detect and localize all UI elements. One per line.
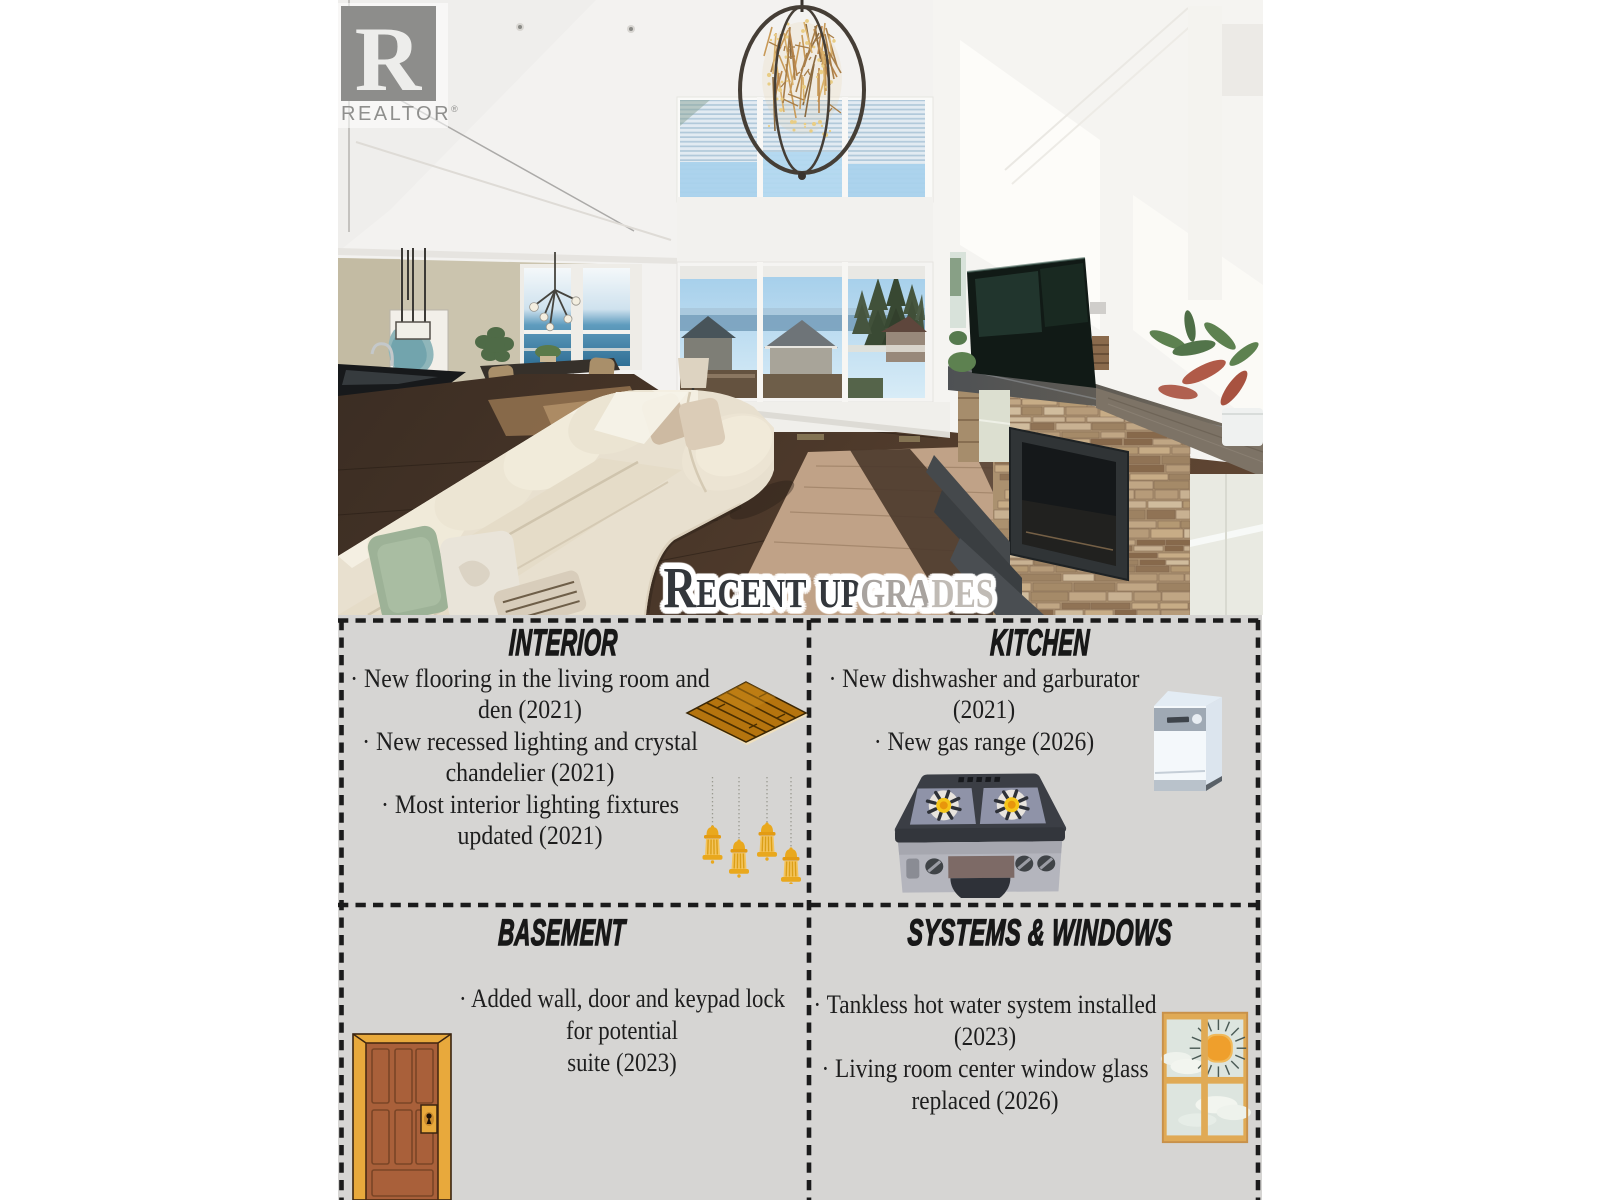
svg-text:R: R <box>355 8 423 101</box>
